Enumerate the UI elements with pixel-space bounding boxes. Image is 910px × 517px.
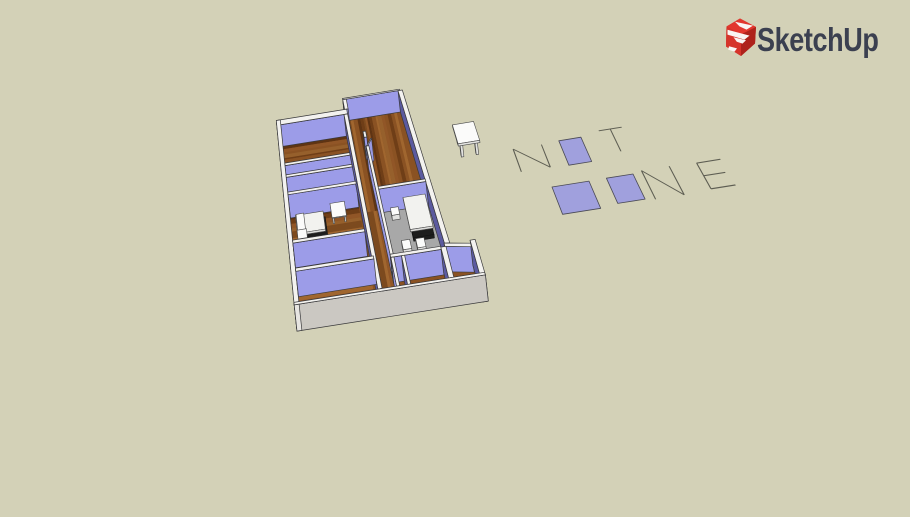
svg-text:SketchUp: SketchUp [757,23,878,59]
